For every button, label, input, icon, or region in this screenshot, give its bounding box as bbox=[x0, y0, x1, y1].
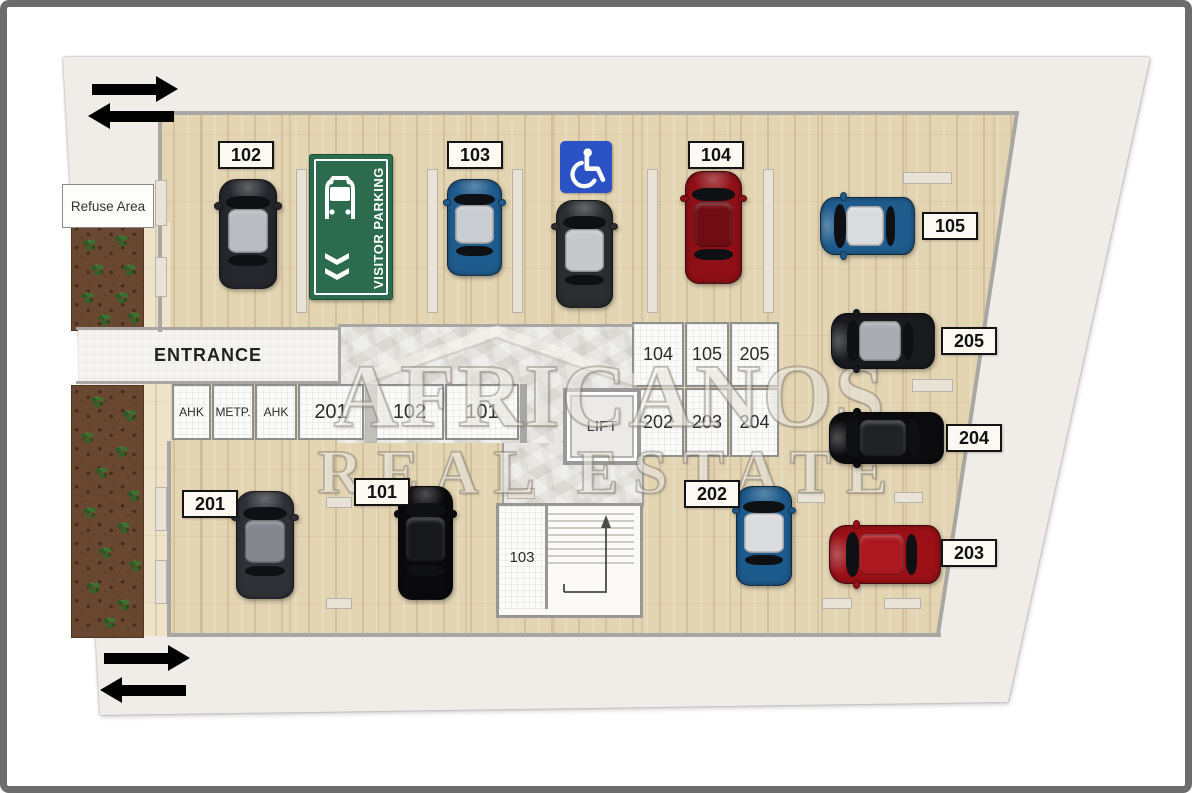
plant bbox=[88, 262, 107, 278]
car-201-rw bbox=[245, 566, 284, 577]
plant bbox=[88, 394, 107, 410]
car-front-icon bbox=[322, 175, 358, 221]
car-103 bbox=[447, 179, 502, 276]
car-201 bbox=[236, 491, 294, 599]
car-105-m1 bbox=[840, 192, 847, 201]
plant bbox=[95, 312, 114, 328]
plant bbox=[114, 520, 133, 536]
entrance-label: ENTRANCE bbox=[154, 345, 262, 366]
storage-room-203: 203 bbox=[685, 388, 729, 457]
wall-pilaster bbox=[326, 598, 352, 609]
car-accessible-ws bbox=[563, 216, 606, 229]
car-accessible bbox=[556, 200, 613, 308]
wall-pilaster bbox=[507, 488, 535, 499]
car-205-rw bbox=[903, 322, 913, 360]
car-101-m1 bbox=[394, 510, 403, 518]
car-103-rw bbox=[456, 246, 493, 256]
arrow-left bbox=[100, 677, 186, 703]
car-102 bbox=[219, 179, 277, 289]
car-205-rf bbox=[859, 321, 901, 360]
plant bbox=[78, 290, 97, 306]
car-202-m1 bbox=[732, 507, 741, 514]
storage-room-101: 101 bbox=[445, 384, 519, 440]
car-205-m1 bbox=[853, 309, 860, 318]
spot-label-202: 202 bbox=[684, 480, 740, 508]
car-204-ws bbox=[846, 418, 860, 458]
arrow-left bbox=[88, 103, 174, 129]
wall-pilaster bbox=[822, 598, 852, 609]
car-203-m2 bbox=[853, 580, 861, 589]
plant bbox=[126, 558, 145, 574]
car-101-m2 bbox=[449, 510, 458, 518]
wheelchair-icon bbox=[564, 145, 608, 189]
arrow-shaft bbox=[110, 111, 174, 122]
arrow-right bbox=[92, 76, 178, 102]
wall-pilaster bbox=[155, 257, 167, 297]
car-105-m2 bbox=[840, 251, 847, 260]
wall-thick-divider bbox=[365, 384, 377, 443]
storage-room-105: 105 bbox=[685, 322, 729, 387]
storage-room-102: 102 bbox=[375, 384, 444, 440]
car-101-rf bbox=[406, 517, 445, 563]
storage-room-103: 103 bbox=[499, 506, 548, 609]
car-205-ws bbox=[847, 320, 859, 363]
arrow-shaft bbox=[122, 685, 186, 696]
wall-entrance-bottom bbox=[76, 381, 340, 384]
wall-pilaster bbox=[155, 180, 167, 226]
wall-pilaster bbox=[512, 169, 523, 313]
plant bbox=[112, 233, 131, 249]
lift-label: LIFT bbox=[587, 418, 618, 435]
wall-bottom bbox=[167, 633, 941, 637]
plant bbox=[96, 545, 115, 561]
wall-stone-top bbox=[338, 324, 634, 327]
wall-pilaster bbox=[647, 169, 658, 313]
car-102-ws bbox=[226, 196, 270, 209]
wall-entrance-top bbox=[76, 327, 340, 330]
storage-room-201: 201 bbox=[298, 384, 364, 440]
spot-label-203: 203 bbox=[941, 539, 997, 567]
spot-label-201: 201 bbox=[182, 490, 238, 518]
plant bbox=[120, 408, 139, 424]
car-accessible-m2 bbox=[609, 223, 618, 230]
car-101-ws bbox=[405, 503, 447, 517]
plant bbox=[84, 580, 103, 596]
car-204-m1 bbox=[853, 408, 861, 416]
wall-pilaster bbox=[797, 492, 825, 503]
wall-left-lower bbox=[167, 441, 171, 637]
wall-pilaster bbox=[884, 598, 921, 609]
wall-corridor-end bbox=[338, 324, 341, 384]
wall-pilaster bbox=[912, 379, 953, 392]
arrow-shaft bbox=[104, 653, 168, 664]
car-204-rf bbox=[860, 420, 906, 456]
storage-room-204: 204 bbox=[730, 388, 779, 457]
car-accessible-rf bbox=[565, 229, 605, 272]
arrow-head-left bbox=[100, 677, 122, 703]
car-204-rw bbox=[908, 420, 920, 455]
plant bbox=[112, 290, 131, 306]
plant bbox=[80, 237, 99, 253]
car-201-ws bbox=[243, 507, 287, 520]
refuse-area-label: Refuse Area bbox=[62, 184, 154, 228]
arrow-head-right bbox=[168, 645, 190, 671]
wall-pilaster bbox=[894, 492, 923, 503]
car-104-m2 bbox=[738, 195, 747, 203]
car-205 bbox=[831, 313, 935, 369]
car-104-rw bbox=[694, 249, 733, 260]
storage-room-104: 104 bbox=[632, 322, 684, 387]
double-chevron-down-icon bbox=[325, 253, 349, 283]
car-104 bbox=[685, 171, 742, 284]
arrow-head-right bbox=[156, 76, 178, 102]
car-105 bbox=[820, 197, 915, 255]
wall-top bbox=[158, 111, 1019, 115]
car-202-rf bbox=[744, 513, 783, 553]
spot-label-102: 102 bbox=[218, 141, 274, 169]
plant bbox=[124, 310, 143, 326]
storage-room-METP.: METP. bbox=[212, 384, 254, 440]
car-accessible-rw bbox=[565, 275, 604, 286]
car-103-rf bbox=[455, 205, 494, 244]
storage-room-AHK: AHK bbox=[172, 384, 211, 440]
car-204 bbox=[829, 412, 944, 464]
car-203-ws bbox=[846, 532, 859, 577]
plant bbox=[100, 615, 119, 631]
stairwell: 103 bbox=[496, 503, 643, 618]
storage-room-205: 205 bbox=[730, 322, 779, 387]
car-102-rf bbox=[228, 209, 269, 253]
car-102-rw bbox=[228, 255, 267, 266]
car-202-rw bbox=[745, 555, 783, 565]
car-202 bbox=[736, 486, 792, 586]
visitor-sign-text: VISITOR PARKING bbox=[371, 165, 386, 289]
car-202-ws bbox=[743, 501, 786, 513]
wall-pilaster bbox=[326, 497, 352, 508]
refuse-area-text: Refuse Area bbox=[71, 199, 145, 214]
car-105-rw bbox=[886, 206, 896, 245]
stairs bbox=[548, 506, 634, 609]
car-102-m2 bbox=[273, 202, 282, 210]
car-203-rf bbox=[859, 534, 904, 575]
car-101-rw bbox=[407, 565, 444, 576]
wall-pilaster bbox=[427, 169, 438, 313]
spot-label-103: 103 bbox=[447, 141, 503, 169]
plant bbox=[120, 262, 139, 278]
accessible-parking-sign bbox=[560, 141, 612, 193]
car-203 bbox=[829, 525, 941, 584]
car-104-rf bbox=[694, 202, 734, 247]
car-102-m1 bbox=[214, 202, 223, 210]
car-105-ws bbox=[834, 204, 845, 248]
plant bbox=[92, 465, 111, 481]
plant bbox=[78, 430, 97, 446]
wall-pilaster bbox=[903, 172, 952, 184]
arrow-head-left bbox=[88, 103, 110, 129]
wall-pilaster bbox=[296, 169, 307, 313]
spot-label-204: 204 bbox=[946, 424, 1002, 452]
car-104-ws bbox=[692, 188, 735, 202]
arrow-shaft bbox=[92, 84, 156, 95]
arrow-right bbox=[104, 645, 190, 671]
wall-rooms-end bbox=[520, 384, 527, 443]
plant bbox=[114, 597, 133, 613]
spot-label-205: 205 bbox=[941, 327, 997, 355]
entrance-corridor: ENTRANCE bbox=[78, 330, 338, 381]
car-204-m2 bbox=[853, 460, 861, 468]
car-203-rw bbox=[906, 534, 917, 574]
car-201-m2 bbox=[290, 514, 299, 521]
car-105-rf bbox=[846, 206, 884, 247]
storage-room-103-label: 103 bbox=[509, 549, 534, 566]
visitor-parking-sign: VISITOR PARKING bbox=[309, 154, 393, 300]
car-201-rf bbox=[245, 520, 286, 563]
lift: LIFT bbox=[563, 388, 641, 465]
storage-room-AHK: AHK bbox=[255, 384, 297, 440]
plant bbox=[112, 444, 131, 460]
car-103-ws bbox=[454, 194, 496, 206]
plant bbox=[124, 488, 143, 504]
spot-label-101: 101 bbox=[354, 478, 410, 506]
spot-label-104: 104 bbox=[688, 141, 744, 169]
wall-pilaster bbox=[155, 487, 167, 531]
parking-floor-plan: Refuse Area ENTRANCE AHKMETP.AHK20110210… bbox=[0, 0, 1192, 793]
spot-label-105: 105 bbox=[922, 212, 978, 240]
wall-pilaster bbox=[763, 169, 774, 313]
plant bbox=[80, 505, 99, 521]
wall-pilaster bbox=[155, 560, 167, 604]
